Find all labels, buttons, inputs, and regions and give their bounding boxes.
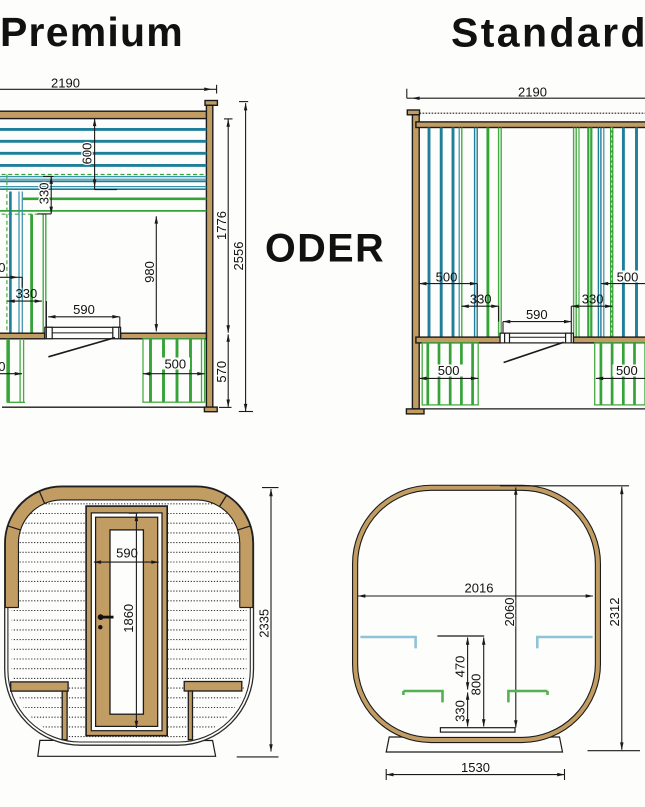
svg-text:1776: 1776 — [214, 211, 229, 240]
svg-text:570: 570 — [214, 361, 229, 383]
svg-text:2312: 2312 — [607, 598, 622, 627]
svg-text:1530: 1530 — [461, 760, 490, 775]
svg-text:500: 500 — [0, 359, 6, 374]
svg-text:Premium: Premium — [0, 9, 184, 55]
svg-text:2060: 2060 — [502, 598, 517, 627]
svg-text:590: 590 — [526, 307, 548, 322]
svg-text:500: 500 — [438, 363, 460, 378]
svg-text:800: 800 — [469, 674, 484, 696]
svg-text:1860: 1860 — [121, 604, 136, 633]
svg-text:500: 500 — [616, 363, 638, 378]
svg-text:600: 600 — [79, 143, 94, 165]
svg-text:470: 470 — [452, 656, 467, 678]
svg-text:590: 590 — [73, 302, 95, 317]
svg-text:330: 330 — [37, 183, 52, 205]
svg-text:500: 500 — [617, 269, 639, 284]
svg-text:500: 500 — [436, 269, 458, 284]
svg-text:330: 330 — [582, 292, 604, 307]
svg-text:330: 330 — [16, 286, 38, 301]
svg-text:ODER: ODER — [265, 227, 385, 271]
svg-text:2190: 2190 — [51, 75, 80, 90]
svg-text:330: 330 — [452, 700, 467, 722]
svg-text:2556: 2556 — [231, 242, 246, 271]
svg-text:500: 500 — [0, 260, 6, 275]
svg-text:2335: 2335 — [257, 609, 272, 638]
svg-text:590: 590 — [116, 546, 138, 561]
svg-text:2016: 2016 — [465, 580, 494, 595]
svg-text:980: 980 — [142, 261, 157, 283]
svg-text:330: 330 — [470, 292, 492, 307]
svg-text:500: 500 — [164, 356, 186, 371]
svg-text:2190: 2190 — [518, 85, 547, 100]
svg-text:Standard: Standard — [451, 10, 645, 56]
